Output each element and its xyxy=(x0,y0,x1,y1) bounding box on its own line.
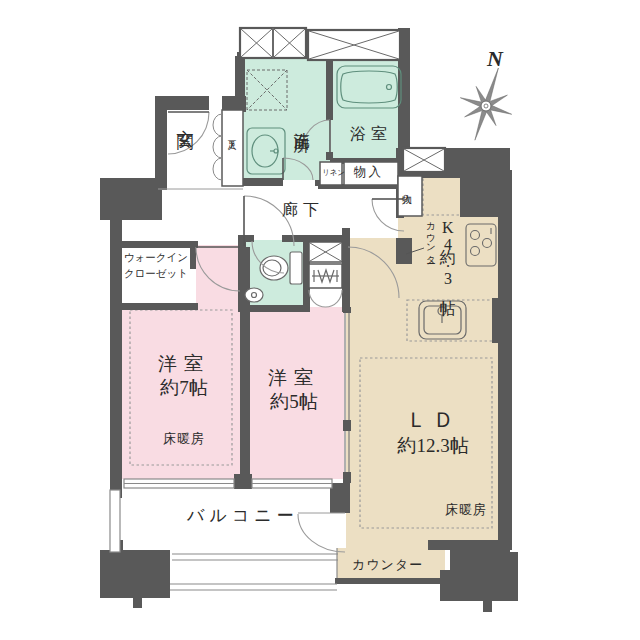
walk-in-closet-label: ウォークインクローゼット xyxy=(118,250,194,282)
compass-north-label: N xyxy=(487,46,503,71)
shoe-cabinet-doors xyxy=(213,114,222,180)
kitchen-counter-label: カウンター xyxy=(425,215,436,258)
hallway-label: 廊下 xyxy=(282,201,324,219)
living-dining-label-line1: ＬＤ xyxy=(406,408,460,432)
linen-label: リネン xyxy=(322,169,345,178)
walk-in-closet-label-line2: クローゼット xyxy=(124,268,188,279)
balcony-label: バルコニー xyxy=(187,506,299,526)
living-dining-label-line2: 約12.3帖 xyxy=(397,435,468,456)
living-dining-label: ＬＤ約12.3帖 xyxy=(372,407,494,459)
bedroom7-floor-heating-label: 床暖房 xyxy=(163,432,205,447)
washroom-label: 洗面所 xyxy=(292,120,310,126)
floor-plan: 玄関 下足入 洗面所 浴室 リネン 物入 廊下 物入 カウンター K約4.3帖 … xyxy=(0,0,640,640)
bedroom5-label-line1: 洋室 xyxy=(268,367,320,388)
walk-in-closet-label-line1: ウォークイン xyxy=(124,252,188,263)
bedroom5-label-line2: 約5帖 xyxy=(270,391,318,412)
floorplan-svg xyxy=(0,0,640,640)
bedroom5-label: 洋室約5帖 xyxy=(244,366,344,414)
bottom-counter-label: カウンター xyxy=(352,558,423,573)
hall-storage-label: 物入 xyxy=(354,165,383,179)
kitchen-label: K約4.3帖 xyxy=(438,219,456,287)
bathroom-label: 浴室 xyxy=(350,125,392,143)
bedroom-windows xyxy=(124,479,332,488)
compass-icon xyxy=(460,68,511,140)
bedroom7-label-line1: 洋室 xyxy=(158,353,210,374)
living-dining-floor-heating-label: 床暖房 xyxy=(445,503,487,518)
bedroom7-label-line2: 約7帖 xyxy=(160,377,208,398)
entrance-label: 玄関 xyxy=(175,116,195,128)
bedroom7-label: 洋室約7帖 xyxy=(128,352,240,400)
